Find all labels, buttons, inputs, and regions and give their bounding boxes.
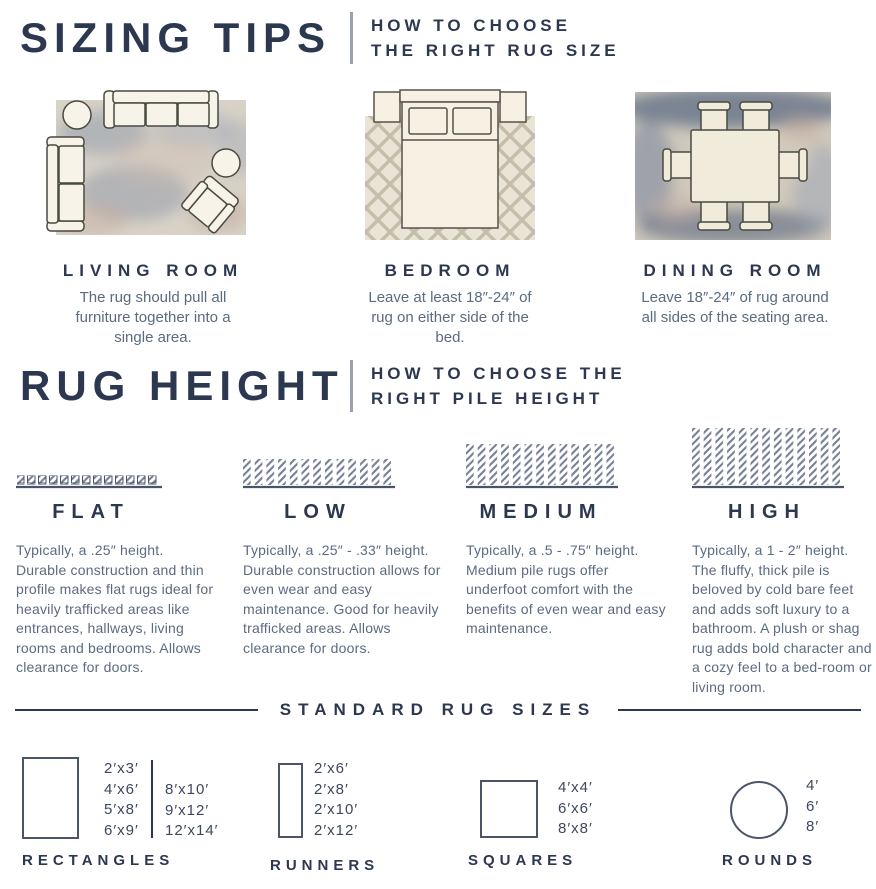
- rectangle-sizes-col1: 2′x3′ 4′x6′ 5′x8′ 6′x9′: [104, 759, 139, 841]
- subtitle-line: THE RIGHT RUG SIZE: [371, 38, 620, 64]
- subtitle-line: HOW TO CHOOSE: [371, 13, 620, 39]
- pile-description: Typically, a .25″ - .33″ height. Durable…: [243, 541, 443, 658]
- rectangle-sizes-divider: [151, 760, 153, 838]
- size-groups-row: 2′x3′ 4′x6′ 5′x8′ 6′x9′ 8′x10′ 9′x12′ 12…: [0, 748, 876, 889]
- size-item: 2′x12′: [314, 821, 358, 842]
- room-description: Leave 18″-24″ of rug around all sides of…: [638, 288, 833, 328]
- group-label-squares: SQUARES: [468, 852, 577, 869]
- size-item: 8′x8′: [558, 819, 593, 840]
- pile-col-high: HIGH Typically, a 1 - 2″ height. The flu…: [692, 425, 872, 697]
- high-pile-illustration: [692, 427, 844, 489]
- round-sizes: 4′ 6′ 8′: [806, 776, 819, 838]
- flat-pile-illustration: [16, 475, 166, 489]
- pile-description: Typically, a .25″ height. Durable constr…: [16, 541, 216, 678]
- header-divider: [350, 360, 353, 412]
- group-label-rounds: ROUNDS: [722, 852, 817, 869]
- runner-sizes: 2′x6′ 2′x8′ 2′x10′ 2′x12′: [314, 759, 358, 841]
- rug-height-subtitle: HOW TO CHOOSE THE RIGHT PILE HEIGHT: [371, 361, 626, 412]
- room-name: LIVING ROOM: [18, 261, 288, 281]
- size-item: 6′x6′: [558, 799, 593, 820]
- piles-row: FLAT Typically, a .25″ height. Durable c…: [0, 425, 876, 695]
- size-item: 5′x8′: [104, 800, 139, 821]
- size-item: 9′x12′: [165, 801, 219, 822]
- standard-sizes-title: STANDARD RUG SIZES: [280, 700, 596, 720]
- rectangle-shape: [22, 757, 79, 839]
- heading-rule-left: [15, 709, 258, 711]
- pile-name: LOW: [243, 501, 393, 524]
- subtitle-line: HOW TO CHOOSE THE: [371, 361, 626, 387]
- square-shape: [480, 780, 538, 838]
- subtitle-line: RIGHT PILE HEIGHT: [371, 386, 626, 412]
- room-name: DINING ROOM: [600, 261, 870, 281]
- sizing-tips-header: SIZING TIPS HOW TO CHOOSE THE RIGHT RUG …: [20, 12, 620, 64]
- size-item: 4′: [806, 776, 819, 797]
- square-sizes: 4′x4′ 6′x6′ 8′x8′: [558, 778, 593, 840]
- rug-height-header: RUG HEIGHT HOW TO CHOOSE THE RIGHT PILE …: [20, 360, 626, 412]
- rooms-row: LIVING ROOM The rug should pull all furn…: [0, 88, 876, 358]
- group-label-runners: RUNNERS: [270, 857, 379, 874]
- medium-pile-illustration: [466, 443, 618, 489]
- low-pile-illustration: [243, 458, 395, 489]
- room-card-bedroom: BEDROOM Leave at least 18″-24″ of rug on…: [325, 88, 575, 348]
- size-item: 8′x10′: [165, 780, 219, 801]
- room-card-living: LIVING ROOM The rug should pull all furn…: [18, 88, 288, 348]
- room-description: The rug should pull all furniture togeth…: [63, 288, 243, 348]
- size-item: 4′x6′: [104, 780, 139, 801]
- size-item: 6′x9′: [104, 821, 139, 842]
- size-item: 2′x3′: [104, 759, 139, 780]
- size-item: 2′x6′: [314, 759, 358, 780]
- size-item: 8′: [806, 817, 819, 838]
- size-item: 12′x14′: [165, 821, 219, 842]
- bedroom-illustration: [330, 88, 570, 248]
- sizing-tips-subtitle: HOW TO CHOOSE THE RIGHT RUG SIZE: [371, 13, 620, 64]
- rug-guide-infographic: SIZING TIPS HOW TO CHOOSE THE RIGHT RUG …: [0, 0, 876, 889]
- pile-description: Typically, a 1 - 2″ height. The fluffy, …: [692, 541, 872, 697]
- pile-name: HIGH: [692, 501, 842, 524]
- sizing-tips-title: SIZING TIPS: [20, 14, 331, 61]
- pile-name: MEDIUM: [466, 501, 616, 524]
- room-description: Leave at least 18″-24″ of rug on either …: [360, 288, 540, 348]
- pile-col-medium: MEDIUM Typically, a .5 - .75″ height. Me…: [466, 425, 666, 639]
- heading-rule-right: [618, 709, 861, 711]
- living-room-illustration: [33, 88, 273, 248]
- rug-height-title: RUG HEIGHT: [20, 362, 344, 409]
- size-item: 2′x10′: [314, 800, 358, 821]
- pile-description: Typically, a .5 - .75″ height. Medium pi…: [466, 541, 666, 639]
- standard-sizes-heading: STANDARD RUG SIZES: [15, 700, 861, 720]
- size-item: 6′: [806, 797, 819, 818]
- pile-col-low: LOW Typically, a .25″ - .33″ height. Dur…: [243, 425, 443, 658]
- round-shape: [730, 781, 788, 839]
- room-name: BEDROOM: [325, 261, 575, 281]
- dining-room-illustration: [613, 88, 858, 248]
- group-label-rectangles: RECTANGLES: [22, 852, 174, 869]
- pile-col-flat: FLAT Typically, a .25″ height. Durable c…: [16, 425, 216, 678]
- runner-shape: [278, 763, 303, 838]
- rectangle-sizes-col2: 8′x10′ 9′x12′ 12′x14′: [165, 780, 219, 842]
- size-item: 2′x8′: [314, 780, 358, 801]
- size-item: 4′x4′: [558, 778, 593, 799]
- pile-name: FLAT: [16, 501, 166, 524]
- room-card-dining: DINING ROOM Leave 18″-24″ of rug around …: [600, 88, 870, 328]
- header-divider: [350, 12, 353, 64]
